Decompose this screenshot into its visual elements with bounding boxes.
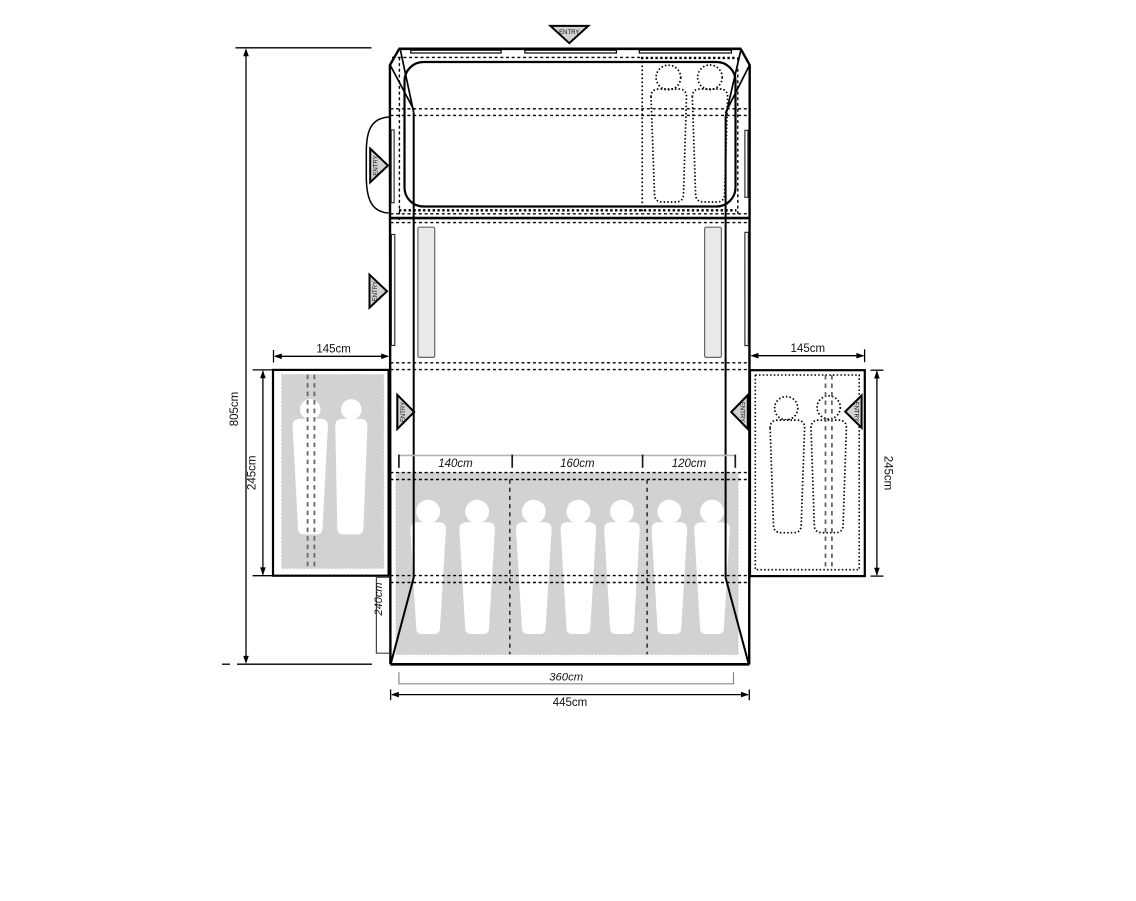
svg-text:140cm: 140cm bbox=[438, 458, 473, 470]
svg-text:240cm: 240cm bbox=[373, 582, 385, 616]
svg-text:ENTRY: ENTRY bbox=[853, 401, 859, 421]
svg-text:120cm: 120cm bbox=[672, 458, 707, 470]
svg-text:ENTRY: ENTRY bbox=[373, 281, 379, 301]
svg-text:245cm: 245cm bbox=[882, 456, 894, 491]
svg-text:245cm: 245cm bbox=[247, 456, 259, 491]
svg-text:145cm: 145cm bbox=[316, 344, 351, 356]
svg-text:ENTRY: ENTRY bbox=[401, 402, 407, 422]
svg-text:360cm: 360cm bbox=[549, 672, 583, 684]
svg-text:ENTRY: ENTRY bbox=[373, 155, 379, 175]
svg-text:445cm: 445cm bbox=[553, 697, 588, 709]
svg-text:805cm: 805cm bbox=[229, 392, 241, 427]
svg-text:ENTRY: ENTRY bbox=[559, 30, 579, 36]
svg-text:145cm: 145cm bbox=[791, 343, 826, 355]
svg-text:160cm: 160cm bbox=[560, 458, 595, 470]
svg-text:ENTRY: ENTRY bbox=[738, 402, 744, 422]
